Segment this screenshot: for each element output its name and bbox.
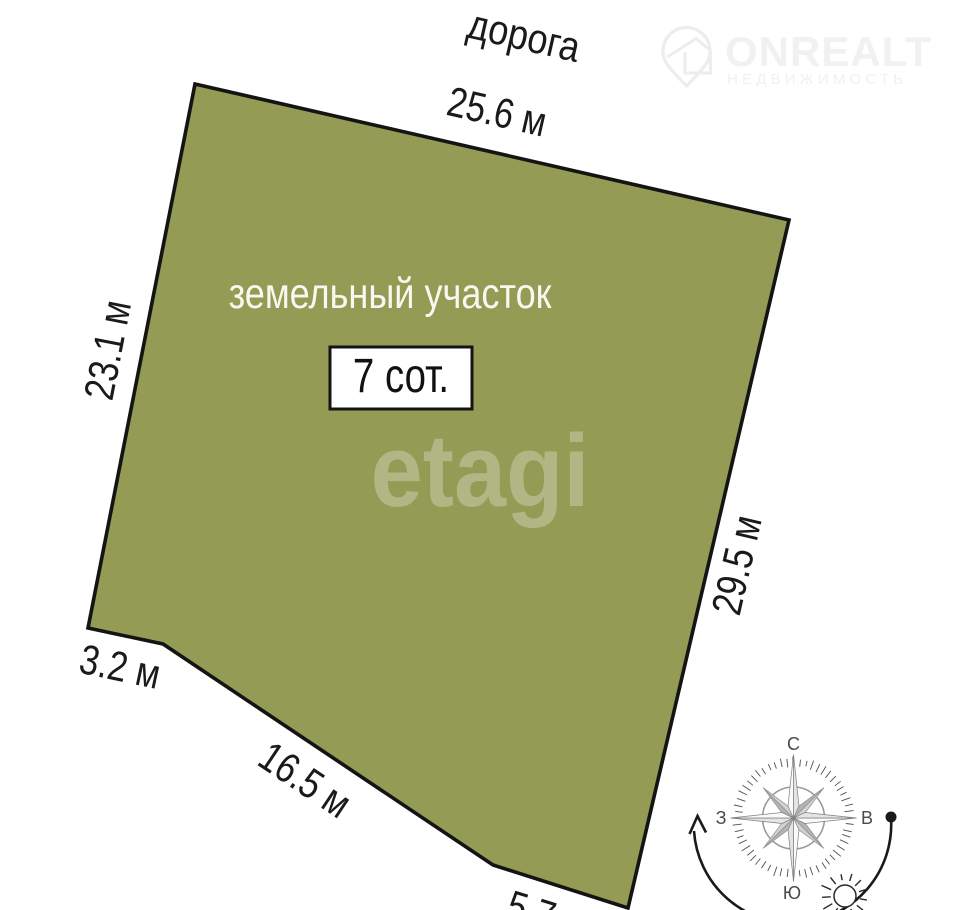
svg-text:23.1 м: 23.1 м <box>76 296 141 403</box>
svg-text:3.2 м: 3.2 м <box>75 636 164 699</box>
svg-text:земельный участок: земельный участок <box>229 270 552 318</box>
svg-text:С: С <box>787 734 800 754</box>
svg-text:Ю: Ю <box>783 883 801 903</box>
svg-text:дорога: дорога <box>463 2 584 72</box>
svg-text:НЕДВИЖИМОСТЬ: НЕДВИЖИМОСТЬ <box>727 71 907 88</box>
svg-text:В: В <box>861 808 873 828</box>
svg-text:25.6 м: 25.6 м <box>443 78 551 146</box>
svg-text:etagi: etagi <box>371 413 590 528</box>
svg-text:7 сот.: 7 сот. <box>353 350 449 403</box>
svg-text:З: З <box>716 808 727 828</box>
svg-text:ONREALT: ONREALT <box>725 28 932 75</box>
